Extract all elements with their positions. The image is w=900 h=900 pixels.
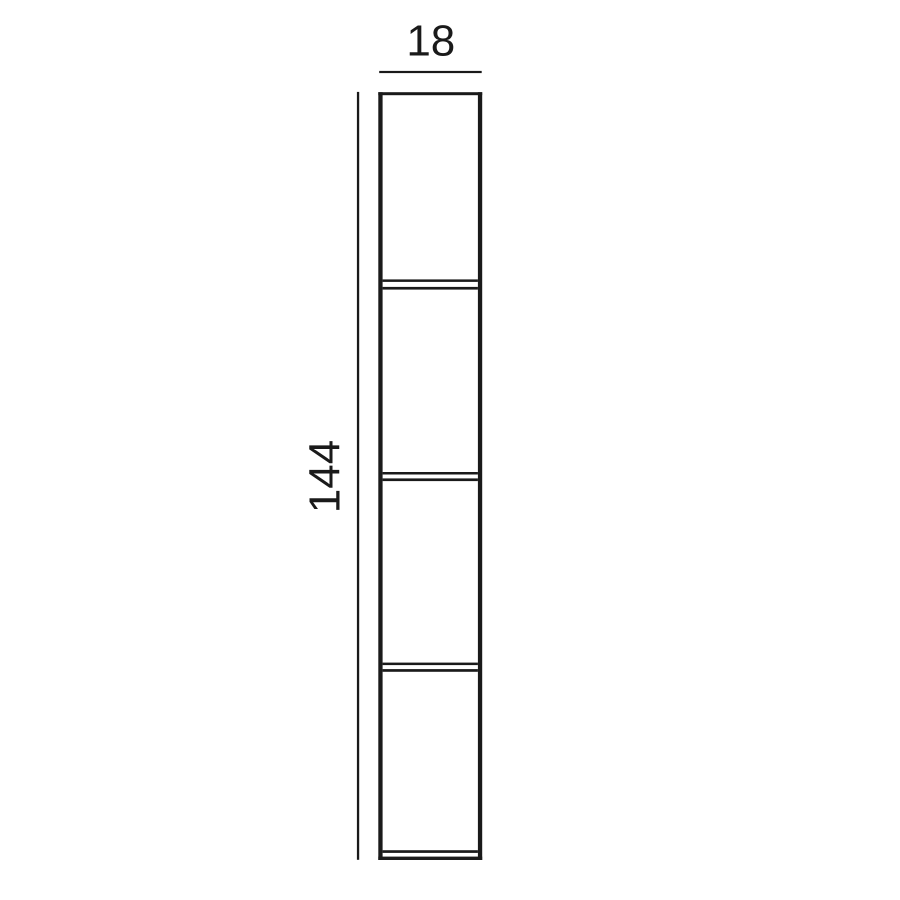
svg-text:18: 18: [406, 17, 455, 66]
svg-text:144: 144: [301, 440, 350, 513]
